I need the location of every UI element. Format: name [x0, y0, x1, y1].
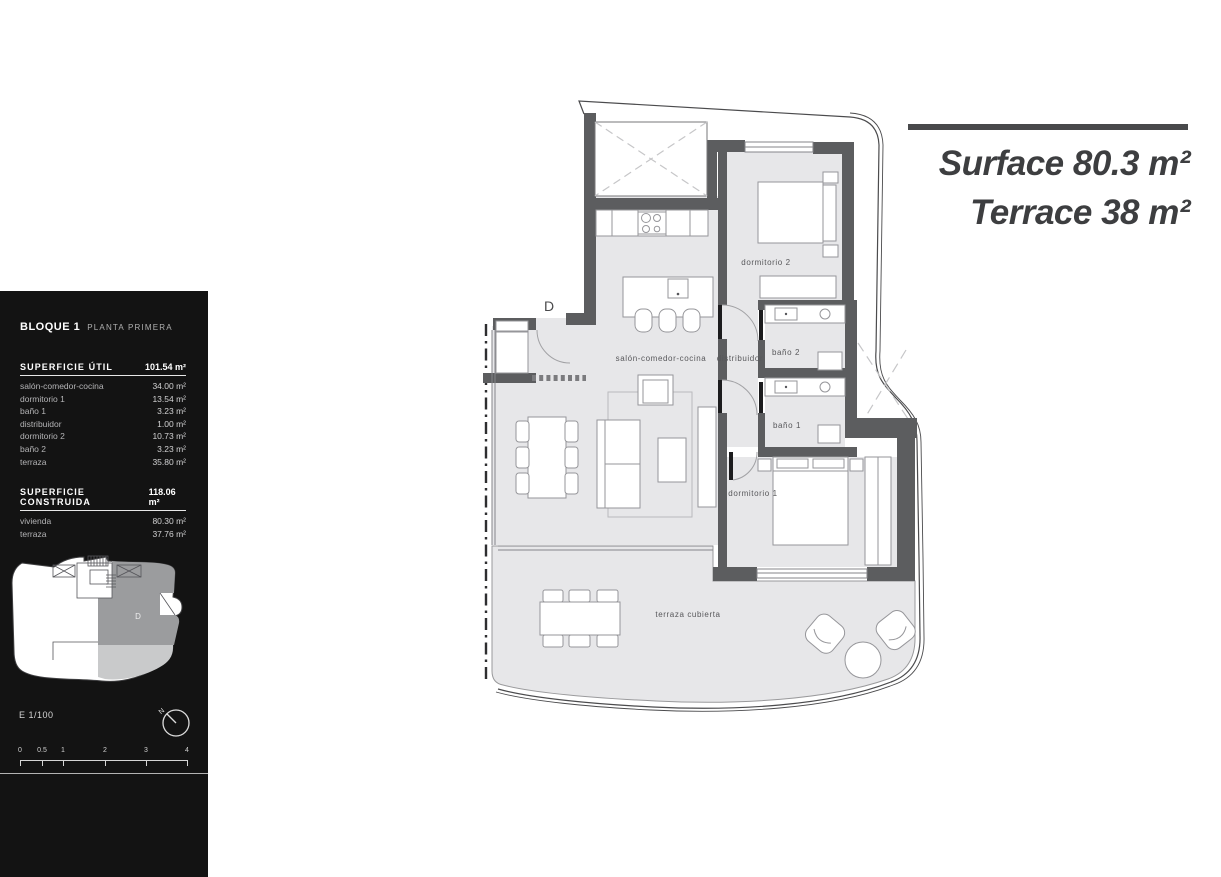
bed	[773, 457, 848, 545]
chair	[543, 635, 563, 647]
wardrobe	[760, 276, 836, 298]
round-table	[845, 642, 881, 678]
label-distribuidor: distribuidor	[717, 354, 763, 363]
nightstand	[758, 459, 771, 471]
table-row: dormitorio 2 10.73 m²	[20, 430, 186, 443]
chair	[569, 590, 590, 602]
floor-title: PLANTA PRIMERA	[87, 323, 173, 332]
table-row: distribuidor 1.00 m²	[20, 418, 186, 431]
bedroom2-furniture	[758, 172, 838, 298]
built-header: SUPERFICIE CONSTRUIDA	[20, 487, 149, 507]
label-bano2: baño 2	[772, 348, 800, 357]
entry-closet	[496, 332, 528, 373]
compass-north-label: N	[158, 707, 166, 716]
shower	[818, 425, 840, 443]
keyplan-unit-label: D	[135, 612, 141, 621]
label-terraza: terraza cubierta	[655, 610, 720, 619]
scale-bar: 0 0.5 1 2 3 4	[0, 747, 208, 769]
stool	[659, 309, 676, 332]
scale-text: E 1/100	[19, 710, 54, 720]
stool	[635, 309, 652, 332]
table-row: terraza 35.80 m²	[20, 456, 186, 469]
chair	[565, 421, 578, 442]
scale-tick-label: 0	[18, 747, 22, 754]
chair	[565, 473, 578, 494]
label-bano1: baño 1	[773, 421, 801, 430]
table-row: salón-comedor-cocina 34.00 m²	[20, 380, 186, 393]
headboard	[823, 185, 836, 241]
table-row: baño 1 3.23 m²	[20, 405, 186, 418]
terrace-title: Terrace 38 m²	[939, 188, 1190, 237]
unit-terrace	[98, 645, 173, 679]
tv-unit	[698, 407, 716, 507]
table-row: dormitorio 1 13.54 m²	[20, 393, 186, 406]
entry-cabinet	[496, 321, 528, 331]
brochure-page: D salón-comedor-cocina distribuidor dorm…	[0, 0, 1221, 877]
scale-tick-label: 4	[185, 747, 189, 754]
stairwell	[595, 122, 707, 196]
chair	[597, 635, 618, 647]
surface-titles: Surface 80.3 m² Terrace 38 m²	[939, 139, 1190, 237]
scale-tick-label: 2	[103, 747, 107, 754]
nightstand	[823, 172, 838, 183]
scale-tick-label: 3	[144, 747, 148, 754]
useful-total: 101.54 m²	[145, 362, 186, 372]
chair	[597, 590, 618, 602]
label-salon: salón-comedor-cocina	[616, 354, 707, 363]
coffee-table	[658, 438, 686, 482]
key-plan: D	[10, 553, 190, 693]
compass: N	[153, 699, 197, 743]
scale-tick-label: 0.5	[37, 747, 47, 754]
table-row: terraza 37.76 m²	[20, 528, 186, 541]
exterior-hatch	[858, 343, 914, 428]
bed	[758, 182, 823, 243]
chair	[516, 447, 529, 468]
built-total: 118.06 m²	[149, 487, 186, 507]
table-row: vivienda 80.30 m²	[20, 515, 186, 528]
floor-plan: D salón-comedor-cocina distribuidor dorm…	[478, 88, 938, 728]
chair	[516, 473, 529, 494]
useful-header: SUPERFICIE ÚTIL	[20, 362, 113, 372]
chair	[516, 421, 529, 442]
nightstand	[823, 245, 838, 257]
block-title: BLOQUE 1	[20, 321, 80, 333]
panel-separator-line	[0, 773, 208, 774]
entrance-label: D	[544, 298, 554, 314]
built-surface-table: SUPERFICIE CONSTRUIDA 118.06 m² vivienda…	[20, 487, 186, 540]
chair	[569, 635, 590, 647]
compass-needle	[167, 714, 176, 723]
chair	[543, 590, 563, 602]
kitchen-counter	[596, 210, 708, 236]
nightstand	[850, 459, 863, 471]
stool	[683, 309, 700, 332]
surface-title: Surface 80.3 m²	[939, 139, 1190, 188]
useful-surface-table: SUPERFICIE ÚTIL 101.54 m² salón-comedor-…	[20, 362, 186, 468]
scale-tick-label: 1	[61, 747, 65, 754]
panel-title-row: BLOQUE 1PLANTA PRIMERA	[20, 317, 173, 335]
shower	[818, 352, 842, 370]
kitchen-island	[623, 277, 713, 332]
info-panel: BLOQUE 1PLANTA PRIMERA SUPERFICIE ÚTIL 1…	[0, 291, 208, 877]
outdoor-table	[540, 602, 620, 635]
chair	[565, 447, 578, 468]
title-accent-bar	[908, 124, 1188, 130]
label-dormitorio2: dormitorio 2	[741, 258, 790, 267]
dining-table	[528, 417, 566, 498]
label-dormitorio1: dormitorio 1	[728, 489, 777, 498]
table-row: baño 2 3.23 m²	[20, 443, 186, 456]
